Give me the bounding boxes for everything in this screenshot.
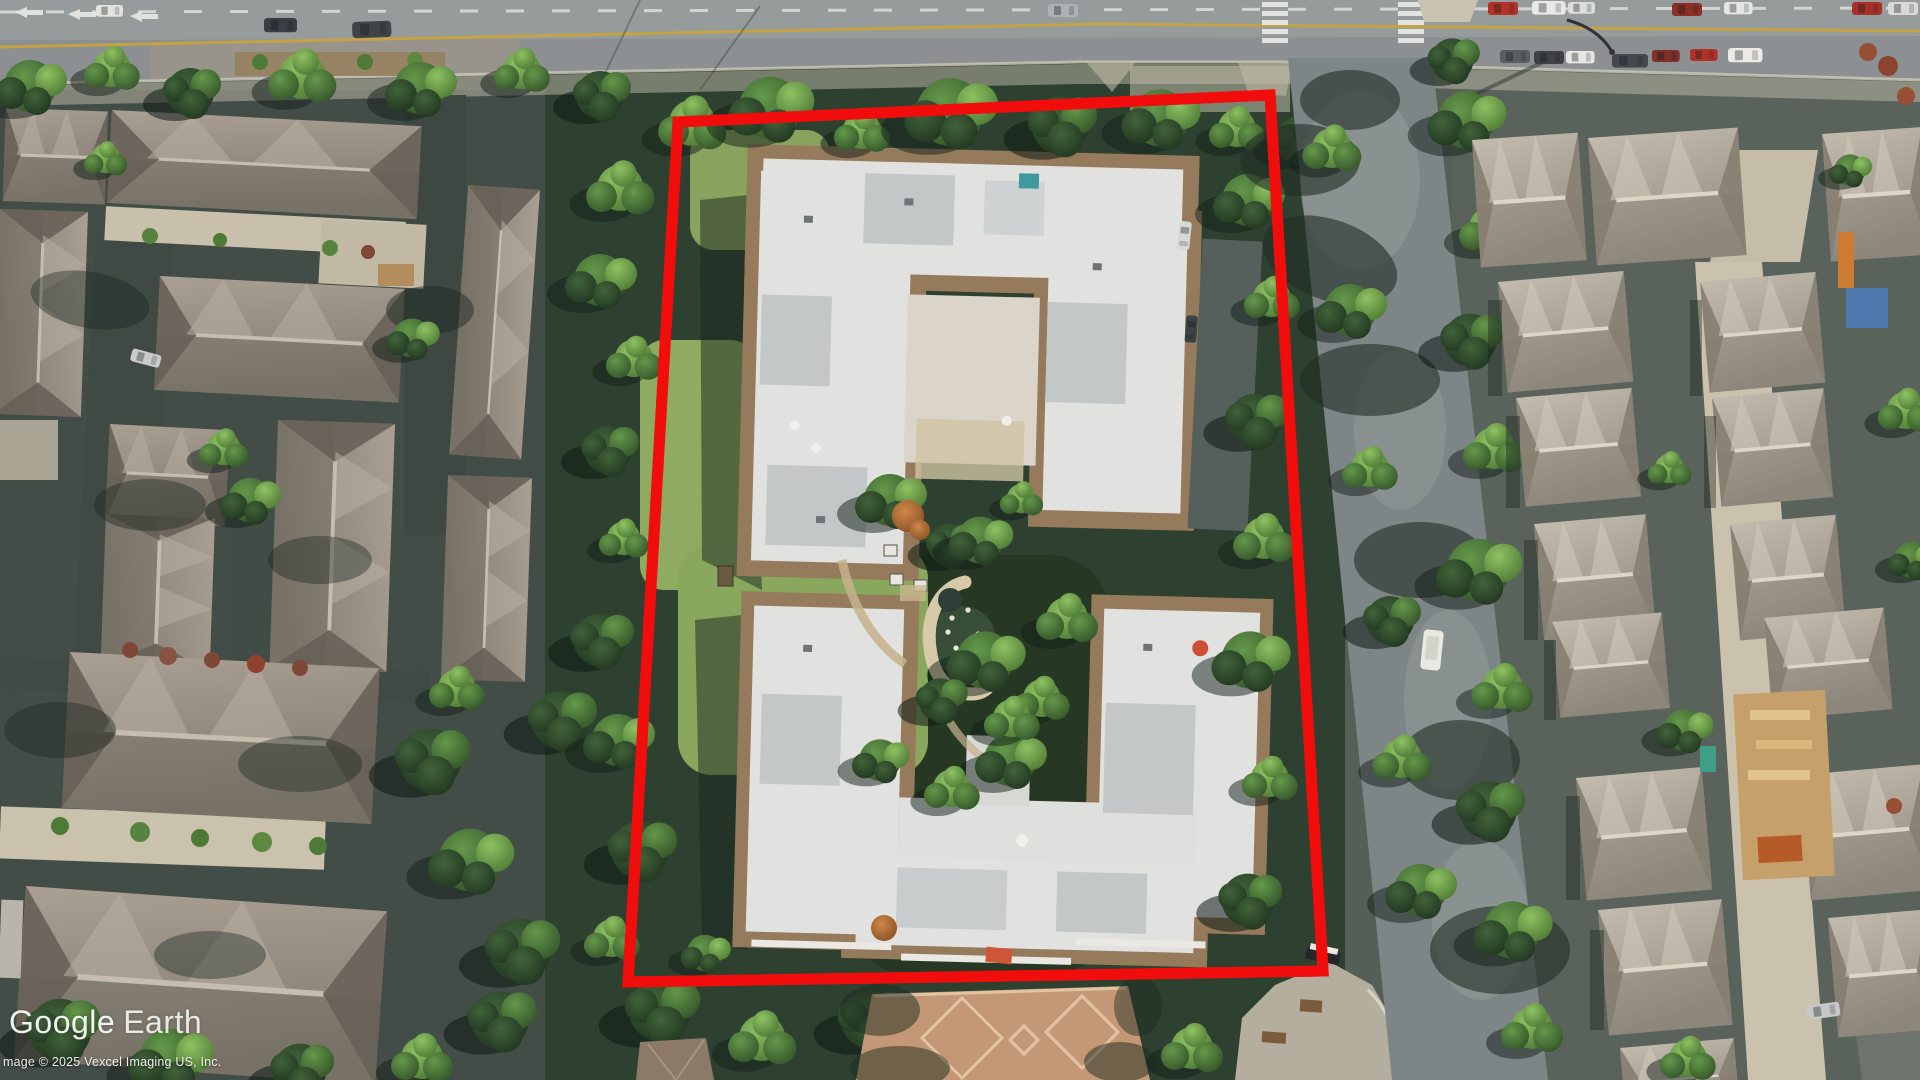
pergola bbox=[890, 574, 903, 585]
garden-sign bbox=[718, 566, 733, 586]
red-awning bbox=[985, 947, 1012, 965]
blue-tarp bbox=[1846, 288, 1888, 328]
watermark-earth: Earth bbox=[123, 1004, 202, 1040]
orange-tree bbox=[871, 915, 897, 941]
copyright-attribution: mage © 2025 Vexcel Imaging US, Inc. bbox=[3, 1055, 221, 1069]
google-earth-watermark: GoogleEarth bbox=[9, 1006, 202, 1038]
aerial-imagery bbox=[0, 0, 1920, 1080]
orange-equipment bbox=[1838, 232, 1854, 288]
green-lift bbox=[1700, 746, 1716, 772]
planter bbox=[1300, 999, 1323, 1013]
median-island bbox=[1418, 0, 1478, 22]
rooftop-pool bbox=[1019, 173, 1039, 189]
watermark-google: Google bbox=[9, 1004, 115, 1040]
pergola bbox=[884, 545, 897, 556]
google-earth-canvas[interactable]: GoogleEarth mage © 2025 Vexcel Imaging U… bbox=[0, 0, 1920, 1080]
